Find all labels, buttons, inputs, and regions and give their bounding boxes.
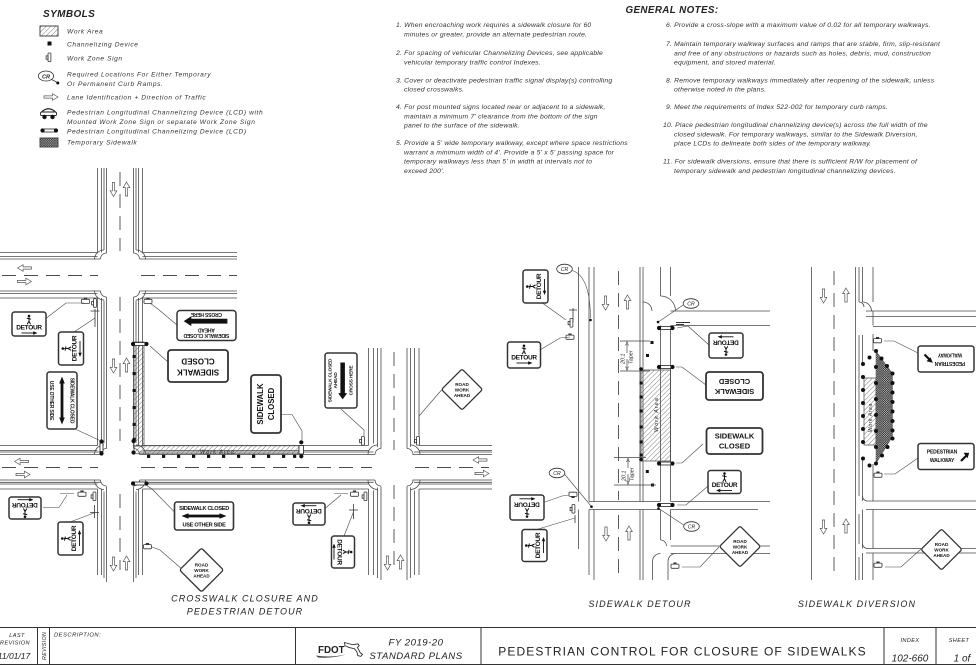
svg-text:9. Meet the requirements of In: 9. Meet the requirements of Index 522-00… [666,104,888,111]
svg-text:SIDEWALK CLOSED: SIDEWALK CLOSED [179,506,229,512]
svg-text:temporary walkways less than 5: temporary walkways less than 5' in width… [404,159,592,166]
svg-text:AHEAD: AHEAD [732,550,749,555]
svg-text:USE OTHER SIDE: USE OTHER SIDE [182,523,226,529]
svg-text:10. Place pedestrian longitudi: 10. Place pedestrian longitudinal channe… [663,122,928,129]
svg-text:11/01/17: 11/01/17 [0,651,30,661]
svg-text:AHEAD: AHEAD [333,372,339,389]
svg-text:exceed 200'.: exceed 200'. [404,168,445,175]
svg-text:LAST: LAST [9,633,25,639]
svg-text:20:1: 20:1 [621,354,627,366]
svg-text:Lane Identification + Directio: Lane Identification + Direction of Traff… [67,95,206,102]
svg-text:vehicular temporary traffic co: vehicular temporary traffic control Inde… [404,59,541,66]
svg-text:CROSS HERE: CROSS HERE [349,365,355,396]
svg-text:warrant a minimum width of 4'.: warrant a minimum width of 4'. Provide a… [404,149,615,156]
svg-text:AHEAD: AHEAD [454,393,471,398]
svg-text:SIDEWALK DIVERSION: SIDEWALK DIVERSION [798,599,916,609]
svg-text:equipment, and stored material: equipment, and stored material. [674,60,776,67]
svg-text:PEDESTRIAN: PEDESTRIAN [934,360,965,366]
svg-text:DETOUR: DETOUR [12,501,38,508]
svg-text:PEDESTRIAN DETOUR: PEDESTRIAN DETOUR [187,607,304,617]
svg-text:DETOUR: DETOUR [712,482,738,489]
svg-text:DETOUR: DETOUR [535,532,542,558]
svg-text:SIDEWALK CLOSED: SIDEWALK CLOSED [69,378,75,424]
svg-text:CLOSED: CLOSED [719,442,751,451]
svg-text:CR: CR [553,471,561,477]
svg-text:SIDEWALK: SIDEWALK [714,387,754,396]
svg-text:WALKWAY: WALKWAY [937,352,962,358]
svg-text:ROAD: ROAD [935,542,949,547]
svg-text:place LCDs to delineate both s: place LCDs to delineate both sides of th… [673,141,871,148]
svg-text:CROSSWALK CLOSURE AND: CROSSWALK CLOSURE AND [171,594,319,604]
svg-text:AHEAD: AHEAD [193,574,210,579]
svg-text:11. For sidewalk diversions, e: 11. For sidewalk diversions, ensure that… [663,159,918,166]
svg-text:SIDEWALK: SIDEWALK [715,432,755,441]
svg-text:WORK: WORK [194,568,209,573]
svg-text:CR: CR [687,302,695,308]
svg-text:DETOUR: DETOUR [72,335,79,361]
svg-text:Work Area: Work Area [67,29,103,36]
svg-text:AHEAD: AHEAD [933,553,950,558]
svg-text:DETOUR: DETOUR [336,539,343,565]
svg-text:4. For post mounted signs loca: 4. For post mounted signs located near o… [396,104,605,111]
svg-text:WORK: WORK [934,548,949,553]
svg-text:102-660: 102-660 [892,654,929,665]
svg-text:SIDEWALK: SIDEWALK [256,383,265,425]
svg-text:CR: CR [561,267,569,273]
svg-text:otherwise noted in the plans.: otherwise noted in the plans. [674,87,766,94]
svg-text:FDOT: FDOT [318,645,345,656]
svg-text:WALKWAY: WALKWAY [930,458,955,464]
svg-text:closed sidewalk. For temporary: closed sidewalk. For temporary walkways,… [674,131,918,138]
svg-text:SYMBOLS: SYMBOLS [43,9,95,20]
svg-text:6. Provide a cross-slope with: 6. Provide a cross-slope with a maximum … [666,22,931,29]
svg-text:CLOSED: CLOSED [718,377,750,386]
svg-text:CLOSED: CLOSED [181,357,215,366]
svg-text:7. Maintain temporary walkway: 7. Maintain temporary walkway surfaces a… [666,41,941,48]
svg-text:INDEX: INDEX [900,638,919,644]
svg-text:and free of any obstructions o: and free of any obstructions or hazards … [674,50,931,57]
svg-text:CLOSED: CLOSED [267,387,276,420]
svg-text:PEDESTRIAN: PEDESTRIAN [927,450,958,456]
svg-text:1 of: 1 of [954,654,972,665]
svg-text:CROSS HERE: CROSS HERE [190,311,222,317]
svg-text:WORK: WORK [455,388,470,393]
svg-text:CR: CR [688,525,696,531]
svg-text:STANDARD PLANS: STANDARD PLANS [369,651,462,662]
svg-text:Temporary Sidewalk: Temporary Sidewalk [67,140,137,147]
svg-text:3. Cover or deactivate pedestr: 3. Cover or deactivate pedestrian traffi… [396,77,612,84]
svg-text:FY 2019-20: FY 2019-20 [389,638,444,649]
svg-text:Work Area: Work Area [868,403,874,432]
svg-text:temporary sidewalk and pedestr: temporary sidewalk and pedestrian longit… [674,168,896,175]
svg-text:USE OTHER SIDE: USE OTHER SIDE [48,381,54,421]
svg-text:ROAD: ROAD [733,539,747,544]
svg-text:AHEAD: AHEAD [198,327,215,333]
svg-text:Pedestrian Longitudinal Channe: Pedestrian Longitudinal Channelizing Dev… [67,129,247,136]
svg-text:8. Remove temporary walkways i: 8. Remove temporary walkways immediately… [666,77,935,84]
svg-text:20:1: 20:1 [622,471,628,483]
svg-text:minutes or greater, provide an: minutes or greater, provide an alternate… [404,31,587,38]
svg-text:SIDEWALK CLOSED: SIDEWALK CLOSED [328,358,334,402]
svg-text:Work Zone Sign: Work Zone Sign [67,56,123,63]
svg-text:Mounted Work Zone Sign or sepa: Mounted Work Zone Sign or separate Work … [67,119,255,126]
svg-text:REVISION: REVISION [42,632,48,660]
svg-text:ROAD: ROAD [455,382,469,387]
svg-text:DETOUR: DETOUR [511,355,537,362]
svg-text:SIDEWALK DETOUR: SIDEWALK DETOUR [588,599,691,609]
svg-text:DETOUR: DETOUR [713,339,739,346]
svg-text:Channelizing Device: Channelizing Device [67,42,139,49]
svg-text:DESCRIPTION:: DESCRIPTION: [54,633,101,639]
svg-text:GENERAL NOTES:: GENERAL NOTES: [625,5,718,16]
svg-text:1. When encroaching work requi: 1. When encroaching work requires a side… [396,22,591,29]
svg-text:DETOUR: DETOUR [296,507,322,514]
svg-text:Taper: Taper [629,350,635,364]
svg-text:DETOUR: DETOUR [536,273,543,299]
svg-text:panel to the surface of the si: panel to the surface of the sidewalk. [403,123,520,130]
svg-text:Taper: Taper [630,467,636,481]
svg-text:Work Area: Work Area [200,450,235,456]
svg-text:WORK: WORK [733,545,748,550]
svg-text:SHEET: SHEET [949,638,970,644]
svg-text:5. Provide a 5' wide temporary: 5. Provide a 5' wide temporary walkway, … [396,140,628,147]
svg-text:PEDESTRIAN CONTROL FOR CLOSURE: PEDESTRIAN CONTROL FOR CLOSURE OF SIDEWA… [498,645,866,659]
svg-text:Or Permanent Curb Ramps.: Or Permanent Curb Ramps. [67,81,163,88]
svg-text:CR: CR [42,74,50,80]
svg-text:DETOUR: DETOUR [514,501,540,508]
svg-text:REVISION: REVISION [0,641,30,647]
svg-text:Required Locations For Either: Required Locations For Either Temporary [67,72,211,79]
svg-text:DETOUR: DETOUR [16,325,42,332]
svg-text:2. For spacing of vehicular Ch: 2. For spacing of vehicular Channelizing… [395,50,603,57]
svg-text:Pedestrian Longitudinal Channe: Pedestrian Longitudinal Channelizing Dev… [67,110,263,117]
svg-text:maintain a minimum 7' clearanc: maintain a minimum 7' clearance from the… [404,113,598,120]
svg-text:Work Area: Work Area [654,397,660,432]
svg-text:ROAD: ROAD [195,563,209,568]
svg-text:closed crosswalks.: closed crosswalks. [404,87,464,94]
svg-text:DETOUR: DETOUR [71,525,78,551]
svg-text:SIDEWALK: SIDEWALK [177,368,219,377]
